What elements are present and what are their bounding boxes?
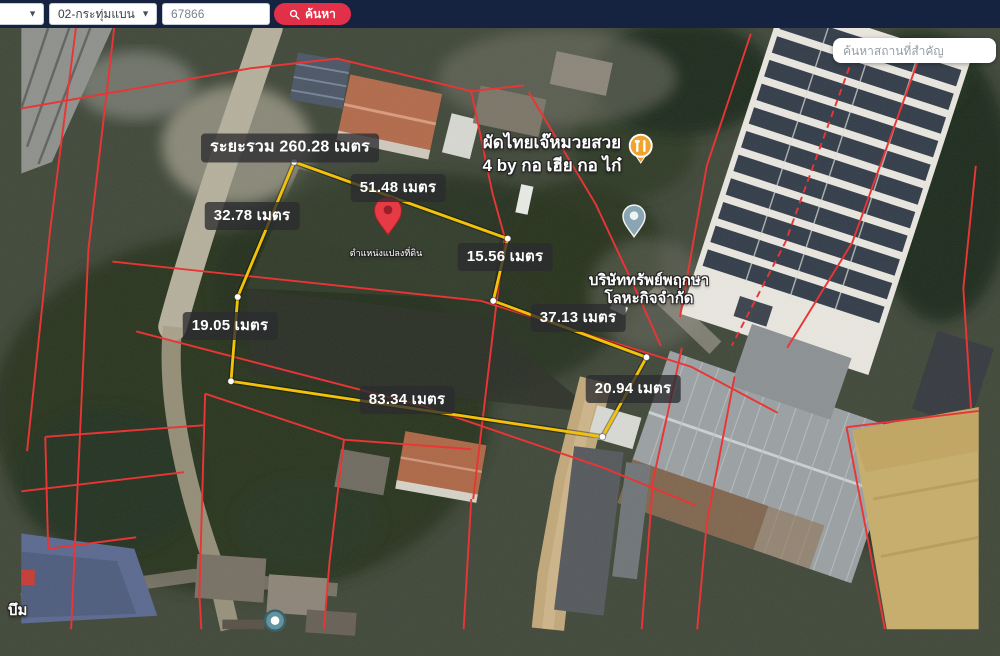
company-label-line1: บริษัททรัพย์พฤกษา <box>589 272 709 290</box>
map-place-search-input[interactable] <box>833 38 996 63</box>
restaurant-label[interactable]: ผัดไทยเจ๊หมวยสวย 4 by กอ เฮีย กอ ไก๋ <box>483 131 622 177</box>
search-button-label: ค้นหา <box>305 5 336 24</box>
measurement-label-bottom: 83.34 เมตร <box>360 386 455 414</box>
restaurant-label-line2: 4 by กอ เฮีย กอ ไก๋ <box>483 154 622 177</box>
measurement-label-right-mid: 37.13 เมตร <box>531 304 626 332</box>
search-button[interactable]: ค้นหา <box>274 3 351 25</box>
chevron-down-icon: ▼ <box>141 4 150 24</box>
restaurant-label-line1: ผัดไทยเจ๊หมวยสวย <box>483 131 622 154</box>
measurement-label-right-upper: 15.56 เมตร <box>458 243 553 271</box>
province-select[interactable]: ▼ <box>0 3 44 25</box>
district-select[interactable]: 02-กระทุ่มแบน ▼ <box>49 3 157 25</box>
satellite-map-layer <box>0 28 1000 656</box>
topbar: ▼ 02-กระทุ่มแบน ▼ ค้นหา <box>0 0 1000 28</box>
measurement-label-upper-left: 32.78 เมตร <box>205 202 300 230</box>
measurement-label-right-lower: 20.94 เมตร <box>586 375 681 403</box>
district-select-value: 02-กระทุ่มแบน <box>58 7 135 21</box>
company-label[interactable]: บริษัททรัพย์พฤกษา โลหะกิจจำกัด <box>589 272 709 308</box>
total-distance-label: ระยะรวม 260.28 เมตร <box>201 134 379 163</box>
parcel-number-input[interactable] <box>162 3 270 25</box>
app-window: ▼ 02-กระทุ่มแบน ▼ ค้นหา <box>0 0 1000 656</box>
satellite-texture <box>21 28 978 629</box>
chevron-down-icon: ▼ <box>28 4 37 24</box>
measurement-label-top: 51.48 เมตร <box>351 174 446 202</box>
poi-circle-icon[interactable] <box>265 611 285 631</box>
map-canvas[interactable]: ระยะรวม 260.28 เมตร 51.48 เมตร 32.78 เมต… <box>0 28 1000 656</box>
measurement-label-left: 19.05 เมตร <box>183 312 278 340</box>
village-label: บึม <box>8 598 27 622</box>
search-icon <box>289 9 300 20</box>
parcel-pin-caption: ตำแหน่งแปลงที่ดิน <box>350 246 423 260</box>
